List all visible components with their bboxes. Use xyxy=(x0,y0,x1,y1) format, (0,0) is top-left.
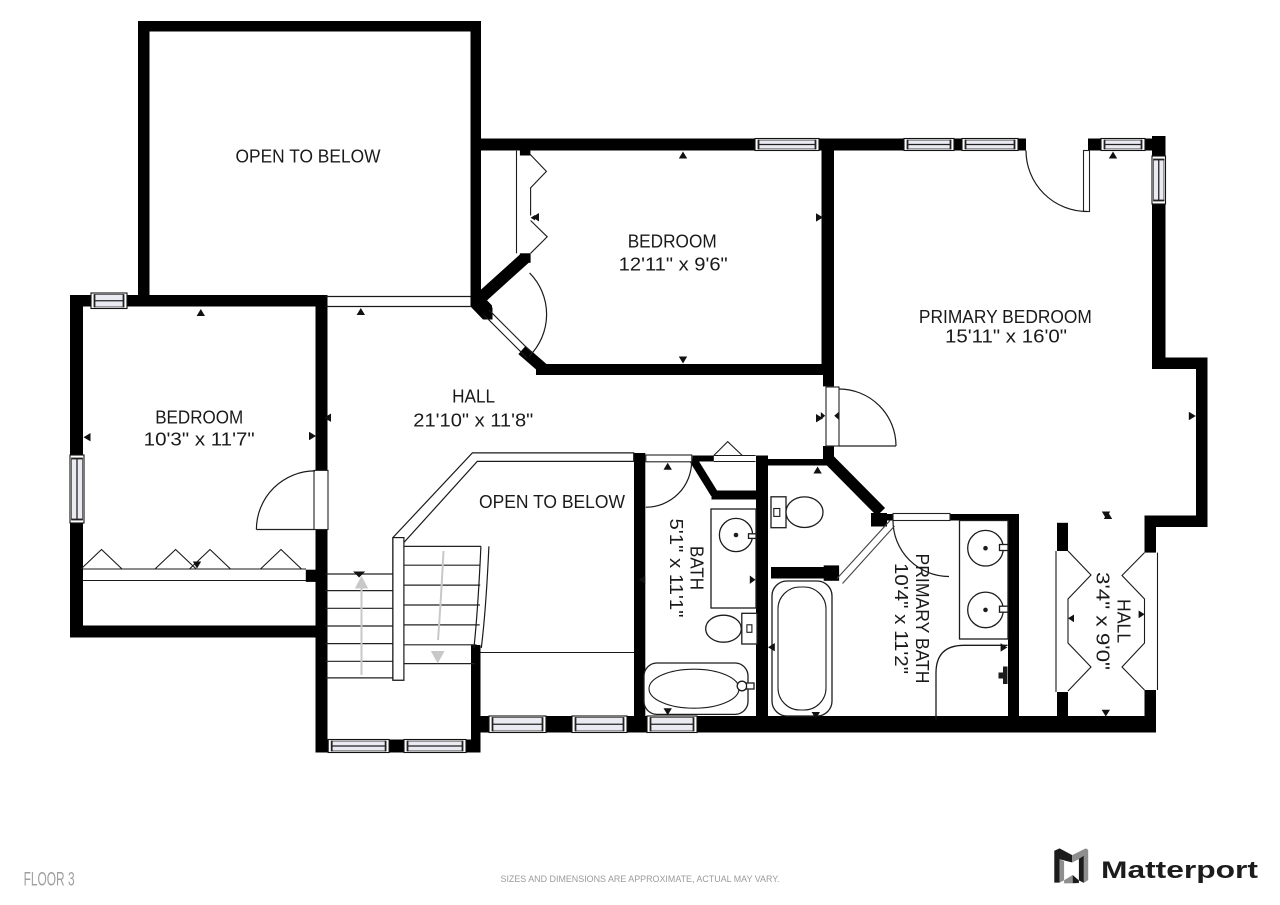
svg-text:BEDROOM: BEDROOM xyxy=(155,407,243,428)
svg-text:12'11" x 9'6": 12'11" x 9'6" xyxy=(619,254,728,275)
svg-text:FLOOR 3: FLOOR 3 xyxy=(24,870,75,891)
svg-text:Matterport: Matterport xyxy=(1101,857,1258,884)
svg-text:HALL: HALL xyxy=(452,386,495,407)
svg-text:10'4" x 11'2": 10'4" x 11'2" xyxy=(891,563,912,674)
svg-text:PRIMARY BEDROOM: PRIMARY BEDROOM xyxy=(919,306,1092,327)
svg-text:BATH: BATH xyxy=(687,546,708,590)
svg-text:15'11" x 16'0": 15'11" x 16'0" xyxy=(945,326,1067,347)
svg-text:OPEN TO BELOW: OPEN TO BELOW xyxy=(479,491,625,512)
svg-text:5'1" x 11'1": 5'1" x 11'1" xyxy=(666,519,687,618)
svg-text:21'10" x 11'8": 21'10" x 11'8" xyxy=(413,410,533,431)
svg-text:PRIMARY BATH: PRIMARY BATH xyxy=(912,554,933,684)
svg-text:3'4" x 9'0": 3'4" x 9'0" xyxy=(1092,572,1113,670)
svg-text:OPEN TO BELOW: OPEN TO BELOW xyxy=(236,146,381,167)
svg-text:HALL: HALL xyxy=(1113,599,1134,643)
svg-text:BEDROOM: BEDROOM xyxy=(628,231,717,252)
svg-text:SIZES AND DIMENSIONS ARE APPRO: SIZES AND DIMENSIONS ARE APPROXIMATE, AC… xyxy=(501,874,780,884)
svg-text:10'3" x 11'7": 10'3" x 11'7" xyxy=(144,429,255,450)
